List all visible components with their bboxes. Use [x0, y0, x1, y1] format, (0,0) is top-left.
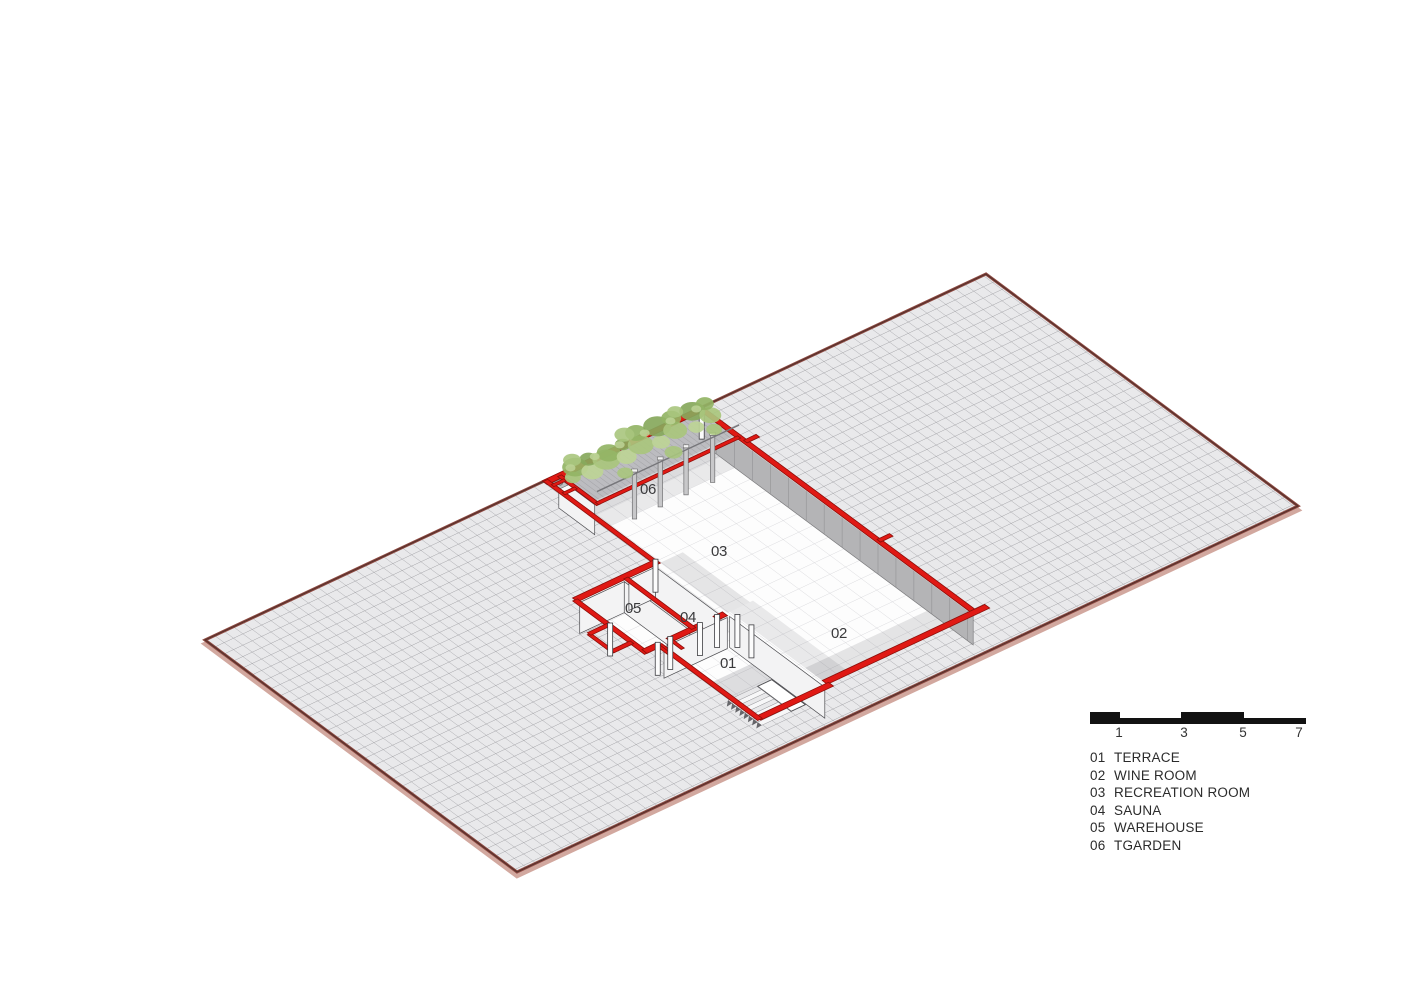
- legend-item: 05WAREHOUSE: [1090, 819, 1350, 837]
- legend-list: 01TERRACE02WINE ROOM03RECREATION ROOM04S…: [1090, 749, 1350, 855]
- room-label-01: 01: [720, 655, 736, 672]
- plant: [667, 406, 683, 417]
- legend-item: 04SAUNA: [1090, 802, 1350, 820]
- plant: [652, 436, 670, 449]
- tgarden-post: [632, 472, 636, 519]
- scale-number: 5: [1239, 725, 1247, 740]
- plant: [706, 424, 722, 435]
- tgarden-post: [684, 448, 688, 495]
- plant-highlight: [691, 405, 701, 412]
- legend-item-number: 01: [1090, 749, 1114, 767]
- plant-highlight: [665, 417, 675, 424]
- door-jamb: [653, 559, 658, 592]
- legend-item-name: TERRACE: [1114, 749, 1180, 767]
- legend-item: 06TGARDEN: [1090, 837, 1350, 855]
- legend-item: 02WINE ROOM: [1090, 767, 1350, 785]
- room-label-04: 04: [680, 609, 696, 626]
- door-jamb: [655, 642, 660, 675]
- scale-bar-band: [1090, 718, 1306, 724]
- door-jamb: [608, 623, 613, 656]
- plant-highlight: [640, 429, 650, 436]
- legend-item-name: WINE ROOM: [1114, 767, 1197, 785]
- plant: [614, 428, 634, 442]
- legend: 1 3 5 7 01TERRACE02WINE ROOM03RECREATION…: [1090, 712, 1350, 855]
- door-jamb: [715, 614, 720, 647]
- legend-item-number: 04: [1090, 802, 1114, 820]
- tgarden-post-cap: [683, 445, 689, 448]
- scale-number: 7: [1295, 725, 1303, 740]
- door-jamb: [735, 614, 740, 647]
- plant-highlight: [590, 453, 600, 460]
- door-jamb: [697, 623, 702, 656]
- plant-highlight: [565, 464, 575, 471]
- plant: [617, 467, 633, 478]
- legend-item-number: 02: [1090, 767, 1114, 785]
- legend-item-number: 06: [1090, 837, 1114, 855]
- legend-item-name: SAUNA: [1114, 802, 1162, 820]
- tgarden-post: [658, 460, 662, 507]
- scale-number: 1: [1115, 725, 1123, 740]
- scale-number: 3: [1180, 725, 1188, 740]
- room-label-05: 05: [625, 600, 641, 617]
- legend-item: 01TERRACE: [1090, 749, 1350, 767]
- floor-plan-page: 050401020306 1 3 5 7 01TERRACE02WINE ROO…: [0, 0, 1401, 1000]
- room-label-03: 03: [711, 543, 727, 560]
- legend-item-number: 03: [1090, 784, 1114, 802]
- legend-item-number: 05: [1090, 819, 1114, 837]
- room-label-02: 02: [831, 625, 847, 642]
- legend-item-name: RECREATION ROOM: [1114, 784, 1250, 802]
- door-jamb: [668, 636, 673, 669]
- plant: [688, 421, 704, 433]
- plant-highlight: [615, 441, 625, 448]
- door-jamb: [749, 625, 754, 658]
- scale-bar-numbers: 1 3 5 7: [1090, 725, 1306, 741]
- legend-item-name: WAREHOUSE: [1114, 819, 1204, 837]
- room-label-06: 06: [640, 481, 656, 498]
- tgarden-post-cap: [657, 457, 663, 460]
- plant: [665, 446, 683, 459]
- tgarden-post: [710, 435, 714, 482]
- scale-bar: [1090, 712, 1306, 724]
- legend-item: 03RECREATION ROOM: [1090, 784, 1350, 802]
- legend-item-name: TGARDEN: [1114, 837, 1181, 855]
